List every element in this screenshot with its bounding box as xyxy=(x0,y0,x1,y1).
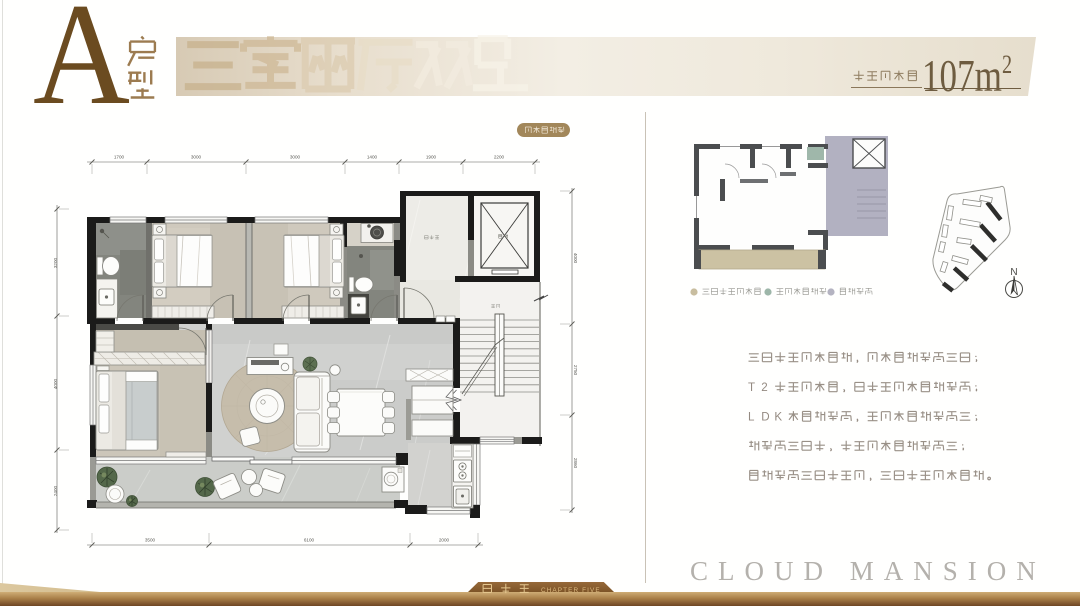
svg-text:6100: 6100 xyxy=(304,538,315,543)
svg-text:2400: 2400 xyxy=(53,485,58,496)
svg-text:2: 2 xyxy=(761,381,767,394)
svg-text:1700: 1700 xyxy=(114,155,125,160)
svg-text:2000: 2000 xyxy=(439,538,450,543)
svg-text:3000: 3000 xyxy=(290,155,301,160)
svg-text:T: T xyxy=(748,381,755,394)
svg-text:D: D xyxy=(761,411,769,424)
svg-text:1900: 1900 xyxy=(426,155,437,160)
svg-text:2200: 2200 xyxy=(494,155,505,160)
svg-text:1400: 1400 xyxy=(367,155,378,160)
svg-text:L: L xyxy=(748,411,755,424)
svg-text:2860: 2860 xyxy=(573,458,578,469)
svg-text:2750: 2750 xyxy=(573,365,578,376)
svg-text:3500: 3500 xyxy=(145,538,156,543)
svg-text:K: K xyxy=(774,411,782,424)
svg-text:4000: 4000 xyxy=(573,253,578,264)
svg-text:CHAPTER FIVE: CHAPTER FIVE xyxy=(541,587,601,594)
svg-text:3000: 3000 xyxy=(191,155,202,160)
svg-text:4000: 4000 xyxy=(53,378,58,389)
svg-text:3200: 3200 xyxy=(53,257,58,268)
